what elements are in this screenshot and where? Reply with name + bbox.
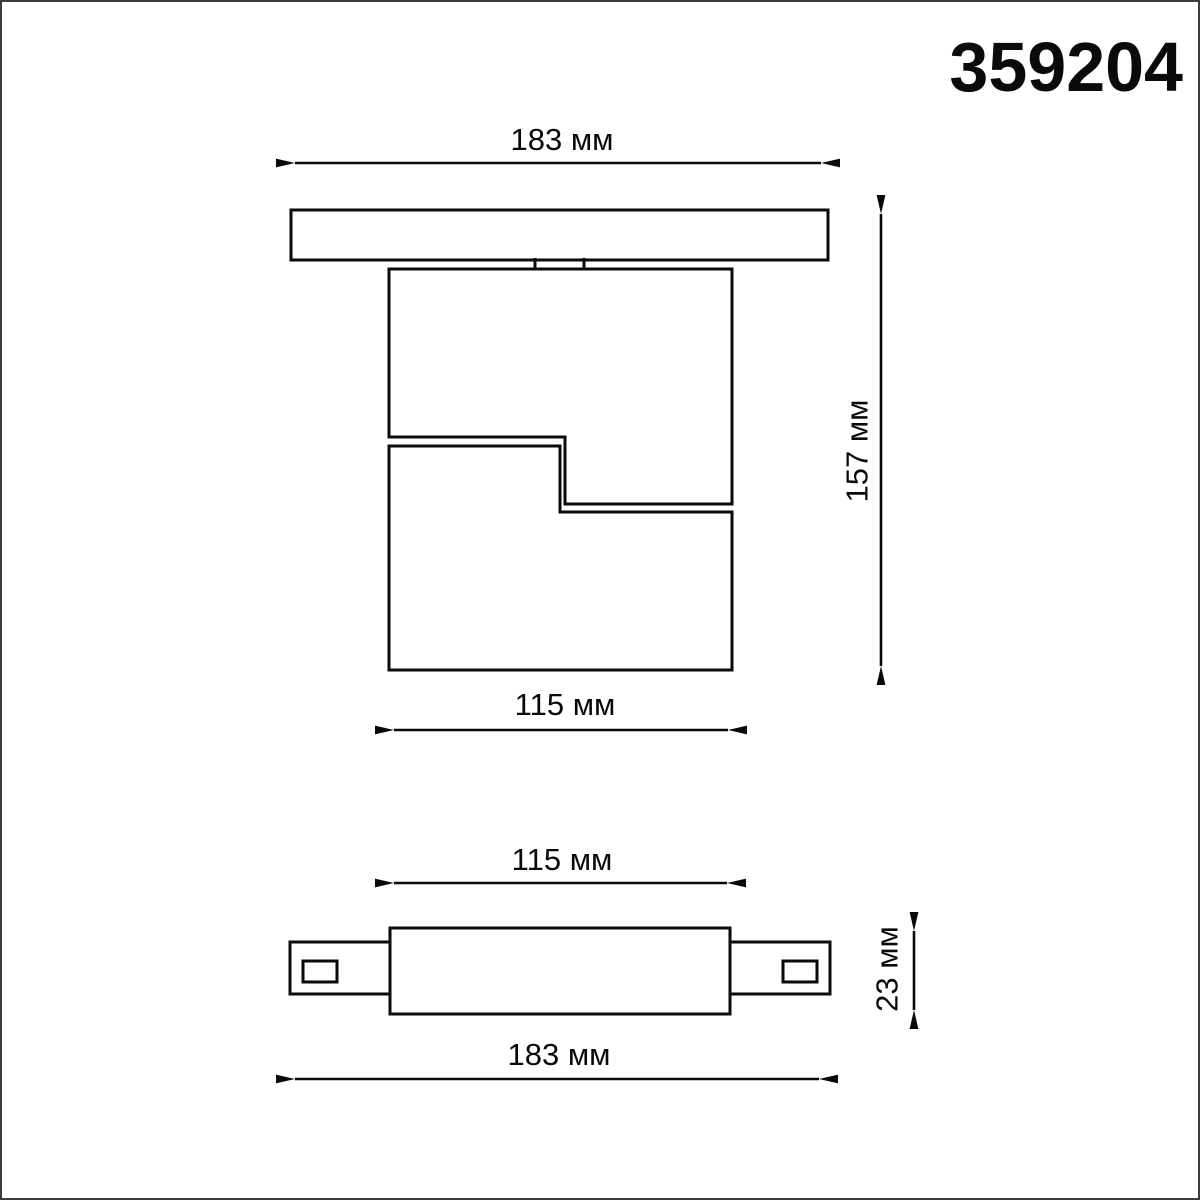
front-track-width-label: 183 мм: [511, 122, 614, 157]
bottom-overall-width-label: 183 мм: [508, 1037, 611, 1072]
connector-housing: [390, 928, 730, 1014]
bottom-height-label: 23 мм: [870, 926, 905, 1012]
left-connector-tab: [290, 942, 390, 994]
front-view: 183 мм 157 мм 115 мм: [291, 122, 881, 730]
front-body-width-label: 115 мм: [515, 687, 616, 722]
technical-drawing: 359204 183 мм 157 мм 115 мм 115 мм: [2, 2, 1200, 1200]
front-height-label: 157 мм: [840, 400, 875, 503]
right-connector-tab: [730, 942, 830, 994]
bottom-body-width-label: 115 мм: [512, 842, 613, 877]
track-bar: [291, 210, 828, 260]
model-number: 359204: [949, 28, 1183, 106]
drawing-page: 359204 183 мм 157 мм 115 мм 115 мм: [0, 0, 1200, 1200]
bottom-view: 115 мм 23 мм 183 мм: [290, 842, 914, 1079]
